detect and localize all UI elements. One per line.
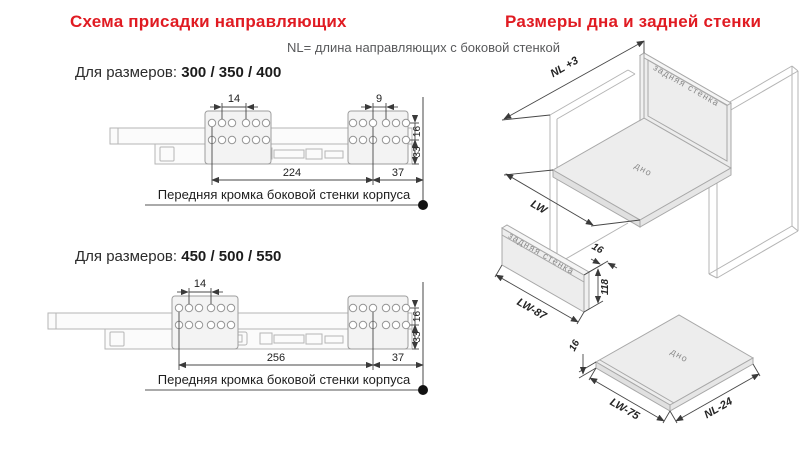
front-edge-marker-dot (418, 200, 428, 210)
dim-hole-pitch-right: 9 (376, 93, 382, 105)
right-section-title: Размеры дна и задней стенки (505, 12, 761, 32)
dim-bottom-panel-width: LW-75 (608, 396, 642, 423)
dim-bottom-panel-depth: NL-24 (702, 396, 734, 422)
dim-edge-distance: 37 (392, 167, 404, 179)
dim-back-panel-width: LW-87 (515, 296, 549, 323)
sizes-caption-1-label: Для размеров: (75, 64, 177, 81)
instruction-sheet: Схема присадки направляющих Размеры дна … (0, 0, 800, 450)
dim-bottom-offset: 33 (412, 331, 423, 343)
bottom-panel-piece (596, 315, 753, 411)
dim-edge-distance: 37 (392, 352, 404, 364)
dim-depth-nl3: NL +3 (548, 55, 580, 80)
cabinet-isometric-diagram: дно задняя стенка NL +3 LW (480, 40, 800, 450)
sizes-caption-1: Для размеров: 300 / 350 / 400 (75, 64, 281, 81)
slide-drilling-diagram-2: 14 16 33 256 37 Передняя кромка боковой … (45, 268, 440, 408)
sizes-caption-2: Для размеров: 450 / 500 / 550 (75, 248, 281, 265)
front-edge-marker-dot (418, 385, 428, 395)
dim-front-distance: 256 (267, 352, 285, 364)
sizes-caption-2-label: Для размеров: (75, 248, 177, 265)
left-section-title: Схема присадки направляющих (70, 12, 347, 32)
slide-drilling-diagram-1: 14 9 16 33 224 37 Передняя кромка боково… (60, 83, 440, 235)
dim-width-lw: LW (528, 198, 550, 217)
dim-hole-pitch-left: 14 (228, 93, 240, 105)
dim-hole-pitch-left: 14 (194, 278, 206, 290)
sizes-caption-1-value: 300 / 350 / 400 (181, 64, 281, 81)
sizes-caption-2-value: 450 / 500 / 550 (181, 248, 281, 265)
dim-back-panel-height: 118 (600, 279, 611, 295)
front-edge-label: Передняя кромка боковой стенки корпуса (158, 187, 411, 202)
dim-row-gap: 16 (412, 126, 423, 138)
nl-plus3-dimension (502, 41, 644, 120)
dim-bottom-offset: 33 (412, 146, 423, 158)
front-edge-label: Передняя кромка боковой стенки корпуса (158, 372, 411, 387)
dim-bottom-panel-thickness: 16 (567, 338, 582, 353)
dim-front-distance: 224 (283, 167, 301, 179)
dim-row-gap: 16 (412, 311, 423, 323)
